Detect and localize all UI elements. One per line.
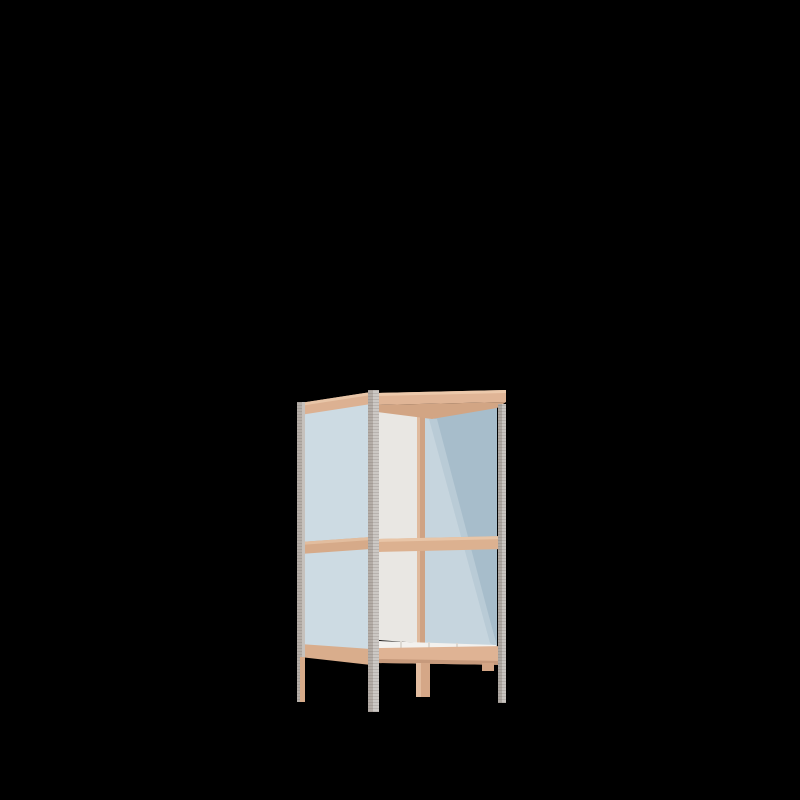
- bottom-shelf-slat: [428, 642, 430, 648]
- render-canvas: [0, 0, 800, 800]
- back-left-leg: [300, 657, 305, 702]
- rear-right-foot: [482, 663, 494, 671]
- back-panel: [378, 409, 421, 643]
- back-right-leg-highlight: [416, 663, 421, 697]
- front-right-post-light-face-texture: [502, 404, 506, 703]
- front-left-post-light-face-texture: [373, 390, 379, 712]
- back-left-post-light-face: [302, 402, 305, 657]
- left-side-panel: [302, 403, 371, 652]
- bottom-shelf-slat: [400, 641, 402, 648]
- shelving-unit-render: [0, 0, 800, 800]
